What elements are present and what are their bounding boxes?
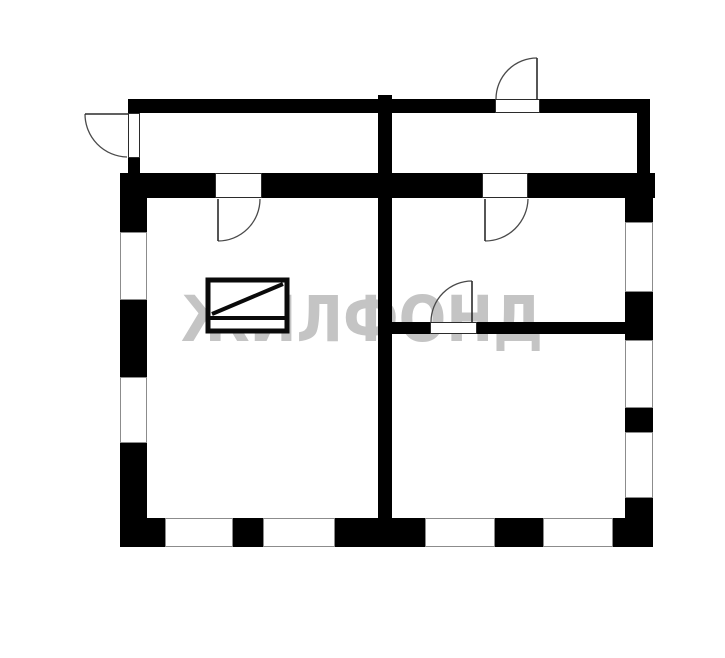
right-wall-mid-1: [625, 292, 653, 340]
door-opening-entry-left: [129, 114, 140, 158]
door-arc-upper-right-room: [485, 199, 528, 241]
window-left-lower: [121, 378, 147, 443]
window-right-upper: [626, 223, 653, 292]
door-opening-entry-top: [496, 100, 540, 113]
partition-wall-left: [392, 322, 430, 334]
window-right-lower: [626, 433, 653, 498]
bottom-wall-seg-2: [233, 518, 263, 547]
bottom-wall-seg-4: [495, 518, 543, 547]
top-wall-middle: [262, 173, 482, 198]
door-arc-left-room: [218, 199, 260, 241]
corridor-top-wall-right: [540, 99, 650, 113]
bottom-wall-seg-1: [120, 518, 165, 547]
door-opening-partition: [431, 323, 477, 334]
corridor-right-wall: [637, 113, 650, 174]
window-left-upper: [121, 233, 147, 300]
left-wall-middle: [120, 300, 147, 377]
floor-plan-canvas: ЖИЛФОНД: [0, 0, 725, 658]
window-bottom-2: [264, 519, 335, 547]
left-wall-upper: [120, 198, 147, 232]
partition-wall-right: [477, 322, 625, 334]
bottom-wall-seg-3: [335, 518, 425, 547]
top-wall-right: [528, 173, 655, 198]
window-bottom-1: [166, 519, 233, 547]
right-wall-upper: [625, 198, 653, 222]
door-arc-entry-left: [85, 114, 127, 157]
window-right-middle: [626, 341, 653, 408]
door-arc-entry-top: [496, 58, 537, 99]
window-bottom-3: [426, 519, 495, 547]
corridor-top-wall-left: [128, 99, 495, 113]
right-wall-mid-2: [625, 408, 653, 432]
window-bottom-4: [544, 519, 613, 547]
door-opening-left-room: [216, 174, 262, 198]
center-wall: [378, 95, 392, 523]
door-opening-upper-right-room: [483, 174, 528, 198]
top-wall-left: [120, 173, 215, 198]
floor-plan: ЖИЛФОНД: [0, 0, 725, 658]
corridor-left-wall-stub: [128, 158, 140, 174]
right-wall-lower: [625, 498, 653, 547]
